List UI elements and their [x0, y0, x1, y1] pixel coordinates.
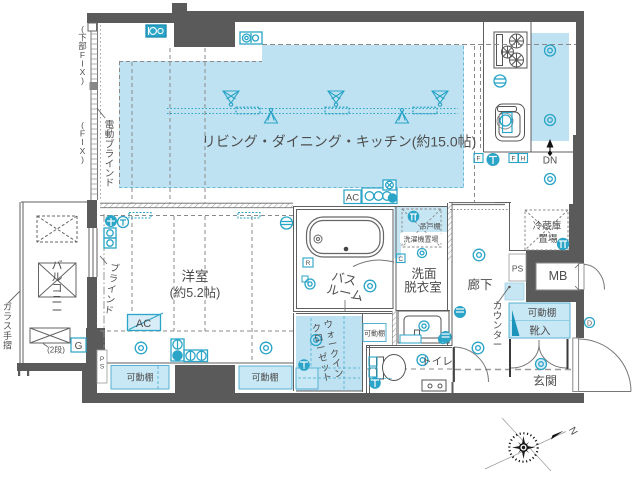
svg-text:バルコニー: バルコニー — [52, 259, 63, 317]
svg-text:ガラス手摺: ガラス手摺 — [3, 302, 12, 350]
svg-text:廊下: 廊下 — [467, 277, 492, 292]
svg-text:冷蔵庫: 冷蔵庫 — [533, 220, 562, 232]
svg-text:洗面: 洗面 — [411, 267, 436, 281]
svg-text:AC: AC — [346, 193, 359, 204]
svg-text:吊戸棚: 吊戸棚 — [420, 222, 441, 231]
svg-text:PS: PS — [100, 356, 105, 371]
svg-text:洗濯機置場: 洗濯機置場 — [404, 235, 439, 244]
svg-text:洋室: 洋室 — [182, 268, 209, 284]
svg-text:電動ブラインド: 電動ブラインド — [105, 120, 115, 189]
svg-text:G: G — [75, 341, 83, 352]
svg-text:H: H — [521, 156, 526, 163]
svg-text:可動棚: 可動棚 — [251, 372, 278, 383]
svg-text:靴入: 靴入 — [530, 324, 551, 337]
svg-text:AC: AC — [136, 318, 151, 330]
svg-text:トイレ: トイレ — [421, 356, 453, 368]
svg-text:DN: DN — [543, 156, 557, 167]
svg-text:カウンター: カウンター — [493, 301, 503, 351]
svg-text:可動棚: 可動棚 — [528, 307, 557, 319]
svg-text:R: R — [306, 260, 311, 267]
svg-text:F: F — [512, 156, 516, 163]
svg-text:F: F — [477, 156, 481, 163]
svg-text:脱衣室: 脱衣室 — [404, 280, 442, 295]
svg-text:C: C — [398, 256, 403, 263]
svg-text:MB: MB — [549, 269, 568, 283]
svg-text:(2段): (2段) — [47, 345, 65, 355]
svg-text:D: D — [587, 321, 592, 328]
svg-text:可動棚: 可動棚 — [126, 372, 153, 383]
svg-text:置場: 置場 — [538, 233, 558, 245]
svg-text:リビング・ダイニング・キッチン(約15.0帖): リビング・ダイニング・キッチン(約15.0帖) — [202, 134, 477, 150]
svg-text:玄関: 玄関 — [533, 373, 557, 388]
svg-text:PS: PS — [512, 264, 524, 274]
svg-text:(約5.2帖): (約5.2帖) — [170, 285, 221, 300]
svg-text:可動棚: 可動棚 — [364, 329, 385, 338]
